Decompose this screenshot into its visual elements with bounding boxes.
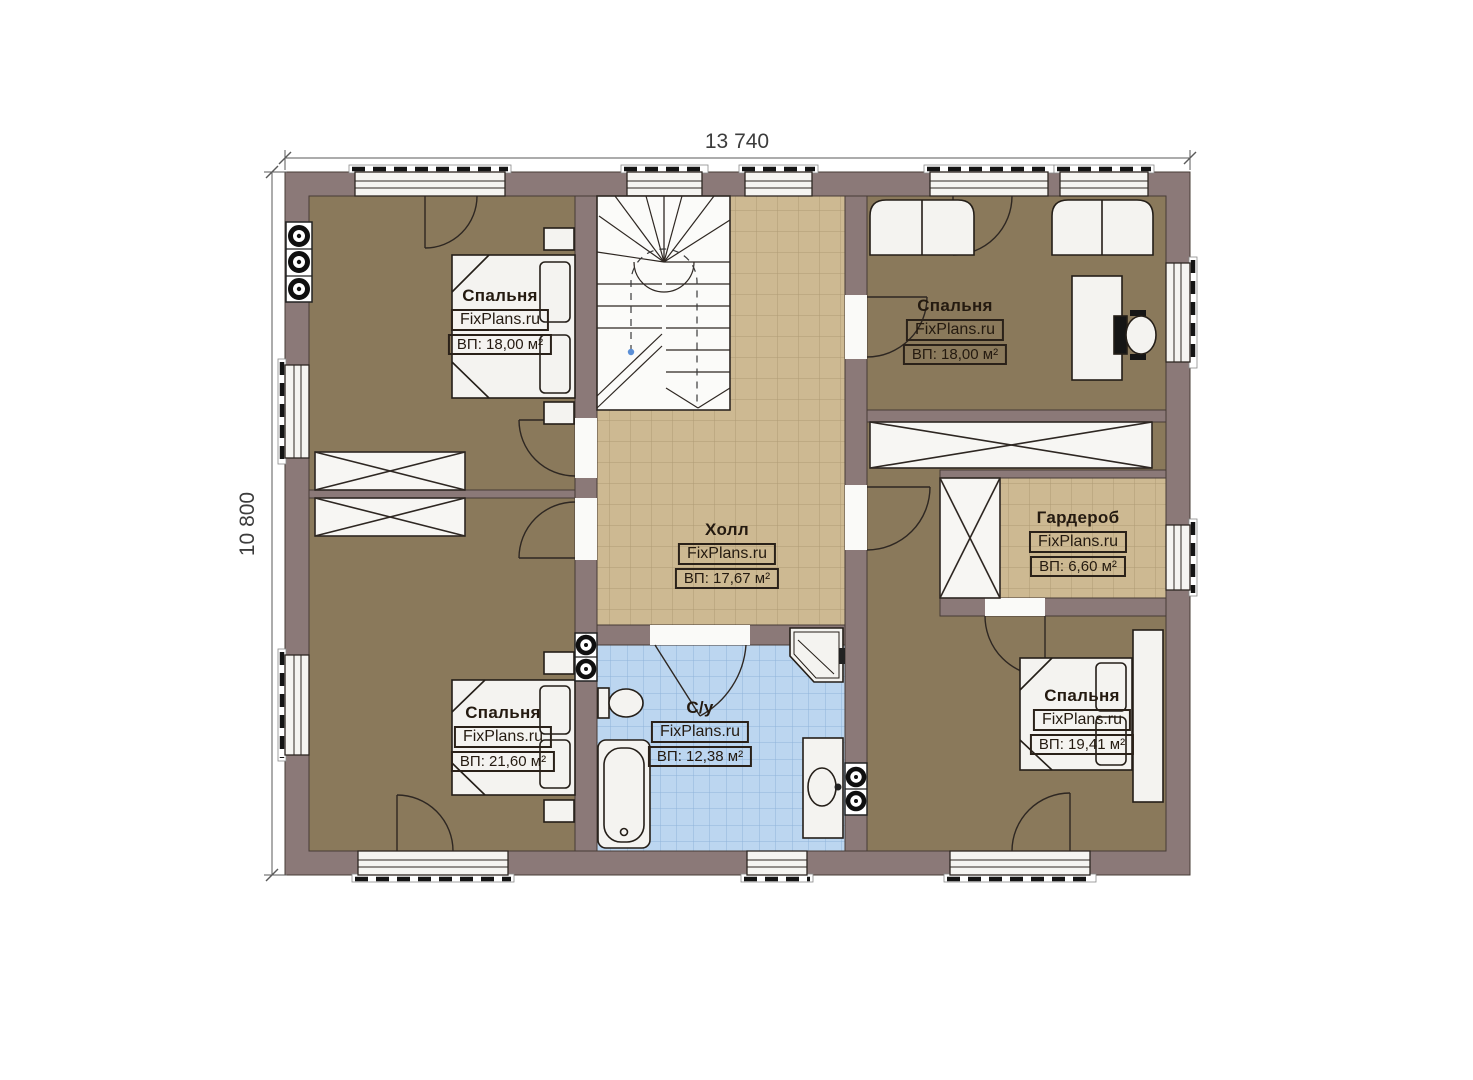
window — [278, 359, 309, 464]
vent-stack — [575, 633, 597, 681]
watermark: FixPlans.ru — [651, 721, 749, 743]
bathtub — [598, 740, 650, 848]
room-label-wardrobe: Гардероб FixPlans.ru ВП: 6,60 м² — [1029, 508, 1127, 577]
window — [1166, 519, 1197, 596]
window — [278, 649, 309, 761]
closet-crossed — [315, 452, 465, 490]
room-area: ВП: 6,60 м² — [1030, 556, 1126, 577]
wall-left-bedrooms-divider — [309, 490, 575, 498]
vent-stack — [845, 763, 867, 815]
room-name: Гардероб — [1029, 508, 1127, 528]
nightstand — [544, 228, 574, 250]
room-name: Спальня — [1030, 686, 1134, 706]
room-label-bedroom-bottom-left: Спальня FixPlans.ru ВП: 21,60 м² — [451, 703, 555, 772]
nightstand — [544, 402, 574, 424]
sofa — [1052, 200, 1153, 255]
nightstand — [544, 800, 574, 822]
watermark: FixPlans.ru — [1033, 709, 1131, 731]
room-area: ВП: 12,38 м² — [648, 746, 752, 767]
sofa — [870, 200, 974, 255]
room-area: ВП: 17,67 м² — [675, 568, 779, 589]
wall-wardrobe-bottom — [940, 598, 1166, 616]
window — [352, 851, 514, 882]
room-name: Спальня — [448, 286, 552, 306]
room-label-hall: Холл FixPlans.ru ВП: 17,67 м² — [675, 520, 779, 589]
toilet — [598, 688, 643, 718]
room-area: ВП: 21,60 м² — [451, 751, 555, 772]
dimension-height-label: 10 800 — [236, 492, 259, 556]
room-name: Спальня — [903, 296, 1007, 316]
window — [739, 165, 818, 196]
watermark: FixPlans.ru — [451, 309, 549, 331]
room-label-bedroom-top-right: Спальня FixPlans.ru ВП: 18,00 м² — [903, 296, 1007, 365]
room-name: С/у — [648, 698, 752, 718]
window — [924, 165, 1054, 196]
room-label-bedroom-top-left: Спальня FixPlans.ru ВП: 18,00 м² — [448, 286, 552, 355]
watermark: FixPlans.ru — [678, 543, 776, 565]
stair-walkline-start-dot — [628, 349, 634, 355]
sink — [803, 738, 843, 838]
watermark: FixPlans.ru — [906, 319, 1004, 341]
window — [349, 165, 511, 196]
closet-crossed — [870, 422, 1152, 468]
window — [1166, 257, 1197, 368]
window — [1054, 165, 1154, 196]
floor-plan-page: 13 740 10 800 Спальня FixPlans.ru ВП: 18… — [0, 0, 1473, 1080]
window — [944, 851, 1096, 882]
dimension-line-left — [264, 166, 287, 881]
closet-crossed — [315, 498, 465, 536]
closet-crossed — [940, 478, 1000, 598]
watermark: FixPlans.ru — [1029, 531, 1127, 553]
room-label-bathroom: С/у FixPlans.ru ВП: 12,38 м² — [648, 698, 752, 767]
vent-stack — [286, 222, 312, 302]
dresser — [1133, 630, 1163, 802]
nightstand — [544, 652, 574, 674]
room-area: ВП: 19,41 м² — [1030, 734, 1134, 755]
room-area: ВП: 18,00 м² — [448, 334, 552, 355]
wall-wardrobe-top — [940, 470, 1166, 478]
dimension-width-label: 13 740 — [705, 130, 769, 153]
room-label-bedroom-bottom-right: Спальня FixPlans.ru ВП: 19,41 м² — [1030, 686, 1134, 755]
wall-top-right-bedroom-bottom — [867, 410, 1166, 422]
room-name: Холл — [675, 520, 779, 540]
window — [621, 165, 708, 196]
room-name: Спальня — [451, 703, 555, 723]
room-area: ВП: 18,00 м² — [903, 344, 1007, 365]
floor-bedroom-bottom-left — [309, 498, 575, 851]
window — [741, 851, 813, 882]
watermark: FixPlans.ru — [454, 726, 552, 748]
staircase — [597, 196, 730, 410]
